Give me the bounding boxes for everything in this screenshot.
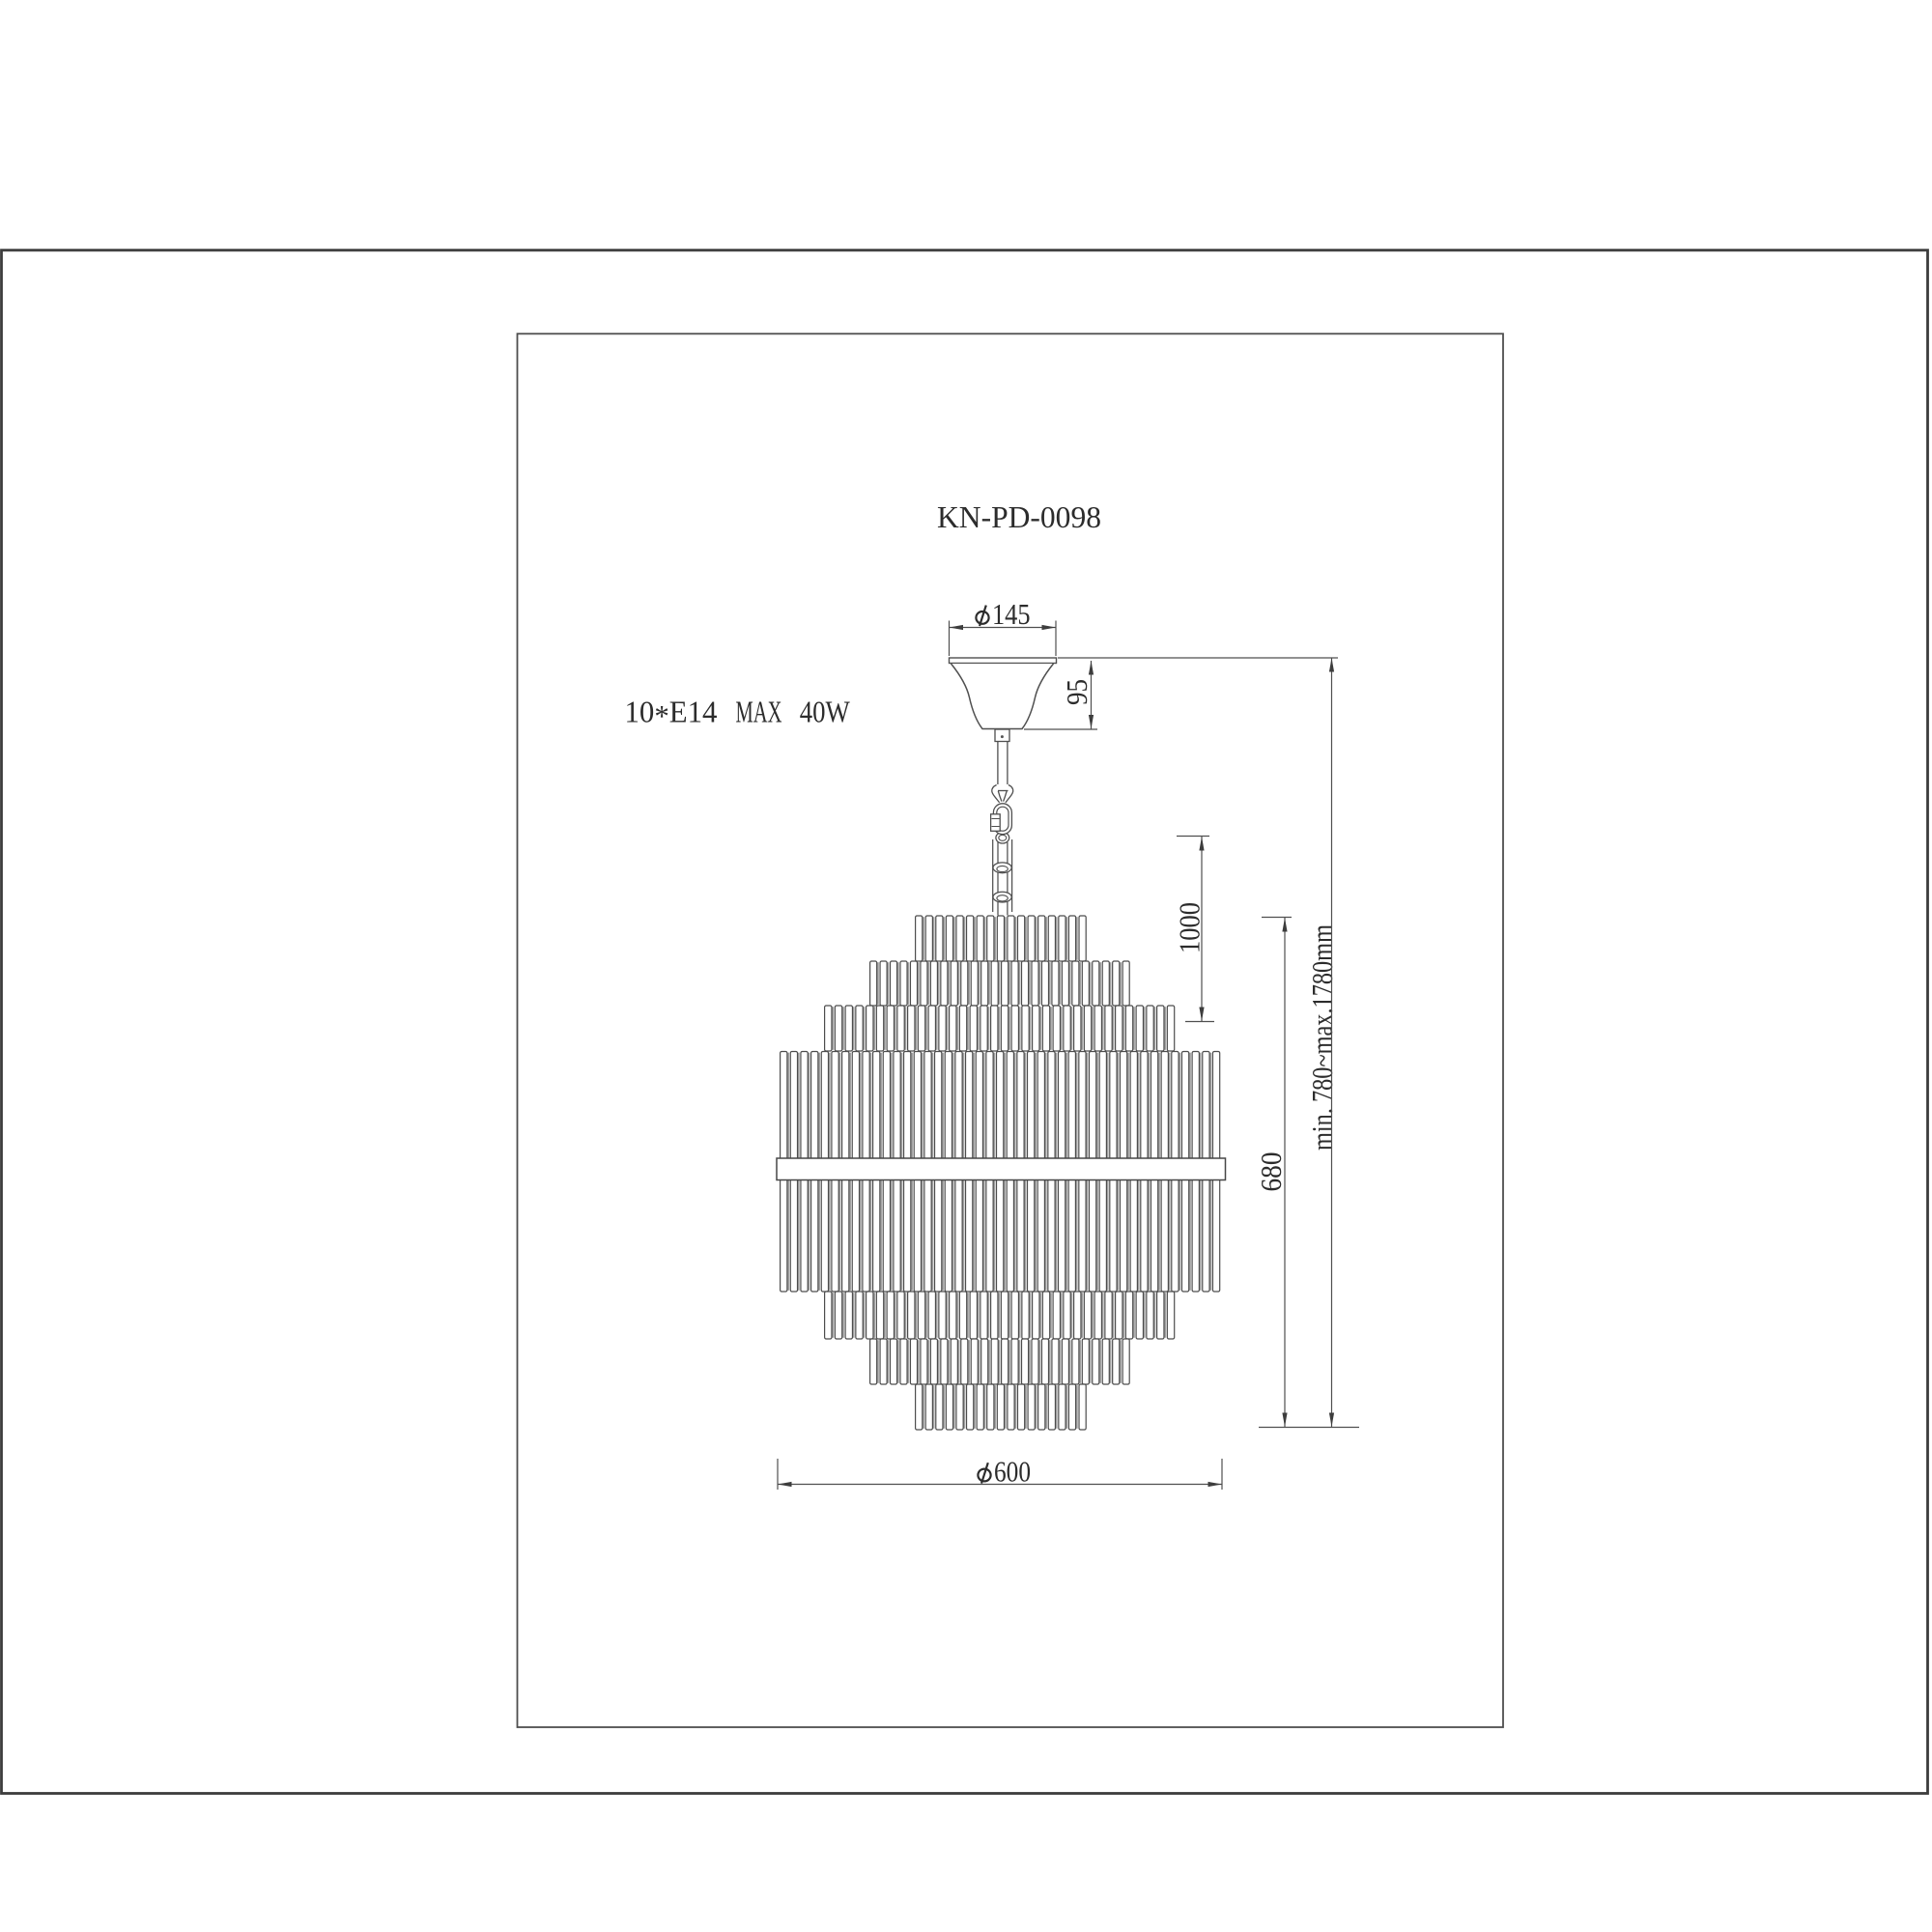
svg-text:600: 600	[994, 1455, 1031, 1489]
svg-text:40W: 40W	[800, 695, 851, 729]
svg-text:MAX: MAX	[736, 695, 782, 729]
svg-text:145: 145	[992, 597, 1031, 631]
svg-text:95: 95	[1060, 679, 1094, 705]
svg-text:10*E14: 10*E14	[625, 695, 718, 734]
svg-text:KN-PD-0098: KN-PD-0098	[937, 499, 1101, 534]
svg-text:min. 780~max.1780mm: min. 780~max.1780mm	[1305, 924, 1339, 1151]
svg-text:1000: 1000	[1173, 902, 1207, 953]
svg-text:680: 680	[1254, 1152, 1288, 1192]
